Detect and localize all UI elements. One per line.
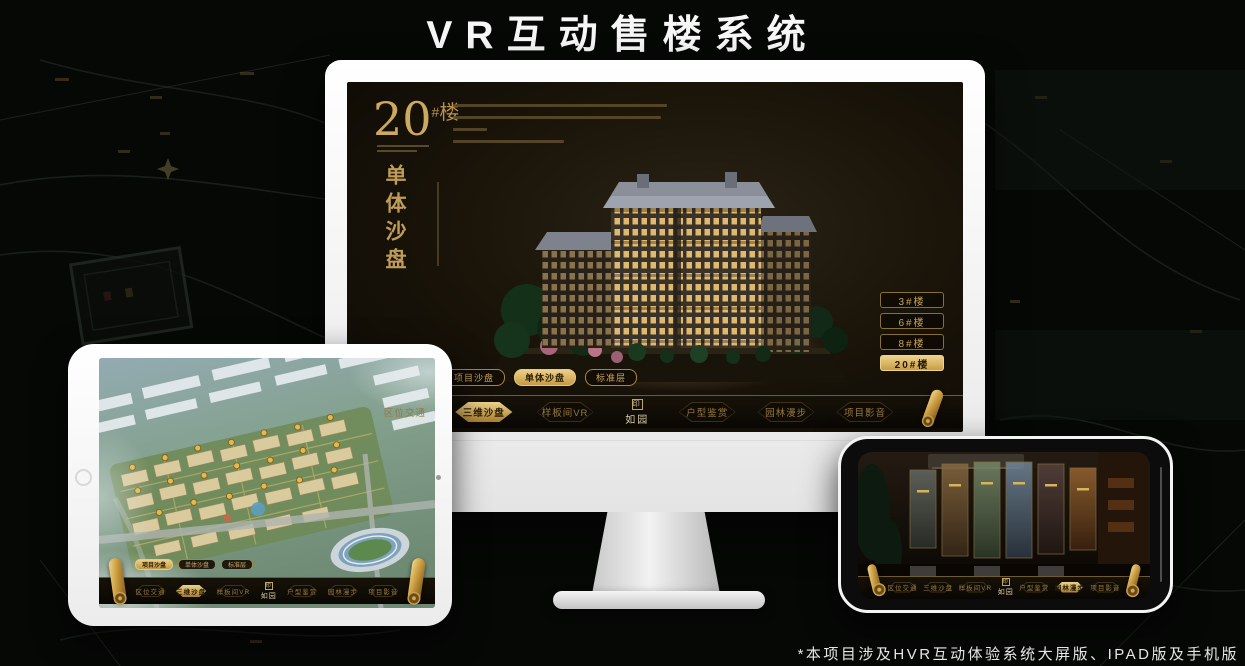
tablet-camera	[436, 475, 441, 480]
page-title: VR互动售楼系统	[0, 4, 1245, 60]
scroll-icon[interactable]	[921, 388, 945, 426]
tablet-frame: 项目沙盘单体沙盘标准层 区位交通三维沙盘样板间VR印如园户型鉴赏园林漫步项目影音	[68, 344, 452, 626]
floor-button-group: 3#楼6#楼8#楼20#楼	[880, 292, 944, 371]
nav-item-label: 园林漫步	[1055, 582, 1085, 592]
headline-english-line	[377, 150, 417, 152]
nav-item-label: 项目影音	[844, 405, 886, 419]
nav-item-label: 园林漫步	[765, 405, 807, 419]
nav-item-label: 样板间VR	[217, 586, 251, 596]
phone-screen: 区位交通三维沙盘样板间VR印如园户型鉴赏园林漫步项目影音	[858, 452, 1150, 599]
mode-tab[interactable]: 标准层	[221, 559, 253, 570]
nav-item-label: 户型鉴赏	[287, 586, 317, 596]
mode-tab[interactable]: 标准层	[585, 369, 637, 386]
masterplan-aerial-image	[99, 358, 435, 608]
nav-item[interactable]: 三维沙盘	[923, 582, 953, 592]
nav-item[interactable]: 样板间VR	[542, 405, 589, 419]
phone-navbar: 区位交通三维沙盘样板间VR印如园户型鉴赏园林漫步项目影音	[858, 576, 1150, 597]
nav-item[interactable]: 样板间VR	[217, 586, 251, 596]
seal-icon: 印	[632, 399, 643, 410]
headline-number: 20	[373, 92, 432, 146]
nav-item-label: 区位交通	[136, 586, 166, 596]
nav-item-label: 项目影音	[368, 586, 398, 596]
nav-item[interactable]: 区位交通	[384, 405, 426, 419]
brand-name: 如园	[625, 411, 649, 426]
headline-english-line	[377, 145, 429, 147]
mode-tab[interactable]: 项目沙盘	[443, 369, 505, 386]
tablet-navbar: 区位交通三维沙盘样板间VR印如园户型鉴赏园林漫步项目影音	[99, 577, 435, 604]
nav-item[interactable]: 户型鉴赏	[287, 586, 317, 596]
headline-subtitle: 单体沙盘	[379, 164, 409, 282]
nav-item[interactable]: 项目影音	[1090, 582, 1120, 592]
page: VR互动售楼系统 20#楼 单体沙盘	[0, 0, 1245, 666]
brand-name: 如园	[261, 591, 277, 601]
brand-logo[interactable]: 印如园	[998, 578, 1014, 597]
nav-item-label: 三维沙盘	[463, 405, 505, 419]
brand-logo[interactable]: 印如园	[625, 399, 649, 426]
nav-item-label: 三维沙盘	[176, 586, 206, 596]
floor-button[interactable]: 6#楼	[880, 313, 944, 329]
tablet-screen: 项目沙盘单体沙盘标准层 区位交通三维沙盘样板间VR印如园户型鉴赏园林漫步项目影音	[99, 358, 435, 608]
nav-item[interactable]: 园林漫步	[765, 405, 807, 419]
mode-tab-group: 项目沙盘单体沙盘标准层	[443, 369, 637, 386]
seal-icon: 印	[265, 582, 273, 590]
headline-block: 20#楼 单体沙盘	[373, 96, 459, 282]
description-fine-print	[453, 104, 667, 152]
mode-tab-group: 项目沙盘单体沙盘标准层	[135, 559, 253, 570]
tablet-home-button[interactable]	[75, 469, 92, 486]
brand-name: 如园	[998, 587, 1014, 597]
headline-vertical-english	[437, 182, 439, 266]
nav-item[interactable]: 三维沙盘	[463, 405, 505, 419]
nav-item[interactable]: 户型鉴赏	[1019, 582, 1049, 592]
nav-item[interactable]: 园林漫步	[328, 586, 358, 596]
nav-item-label: 样板间VR	[542, 405, 589, 419]
nav-item[interactable]: 户型鉴赏	[686, 405, 728, 419]
monitor-stand-base	[553, 591, 765, 609]
nav-item[interactable]: 样板间VR	[959, 582, 993, 592]
nav-item-label: 样板间VR	[959, 582, 993, 592]
phone-side-button	[1160, 467, 1162, 582]
nav-item-label: 户型鉴赏	[686, 405, 728, 419]
brand-logo[interactable]: 印如园	[261, 582, 277, 601]
monitor-stand-neck	[592, 512, 720, 594]
floor-button[interactable]: 8#楼	[880, 334, 944, 350]
nav-item-label: 区位交通	[384, 405, 426, 419]
building-model-image	[487, 150, 857, 402]
nav-item[interactable]: 项目影音	[368, 586, 398, 596]
phone-frame: 区位交通三维沙盘样板间VR印如园户型鉴赏园林漫步项目影音	[838, 436, 1173, 613]
mode-tab[interactable]: 项目沙盘	[135, 559, 173, 570]
nav-item[interactable]: 三维沙盘	[176, 586, 206, 596]
nav-item-label: 区位交通	[888, 582, 918, 592]
footnote-text: *本项目涉及HVR互动体验系统大屏版、IPAD版及手机版	[798, 643, 1239, 664]
nav-item[interactable]: 园林漫步	[1055, 582, 1085, 592]
nav-item-label: 户型鉴赏	[1019, 582, 1049, 592]
nav-item-label: 项目影音	[1090, 582, 1120, 592]
floor-button[interactable]: 20#楼	[880, 355, 944, 371]
nav-item-label: 三维沙盘	[923, 582, 953, 592]
nav-item[interactable]: 区位交通	[888, 582, 918, 592]
nav-item-label: 园林漫步	[328, 586, 358, 596]
nav-item[interactable]: 项目影音	[844, 405, 886, 419]
seal-icon: 印	[1002, 578, 1010, 586]
mode-tab[interactable]: 单体沙盘	[514, 369, 576, 386]
floor-button[interactable]: 3#楼	[880, 292, 944, 308]
mode-tab[interactable]: 单体沙盘	[178, 559, 216, 570]
nav-item[interactable]: 区位交通	[136, 586, 166, 596]
